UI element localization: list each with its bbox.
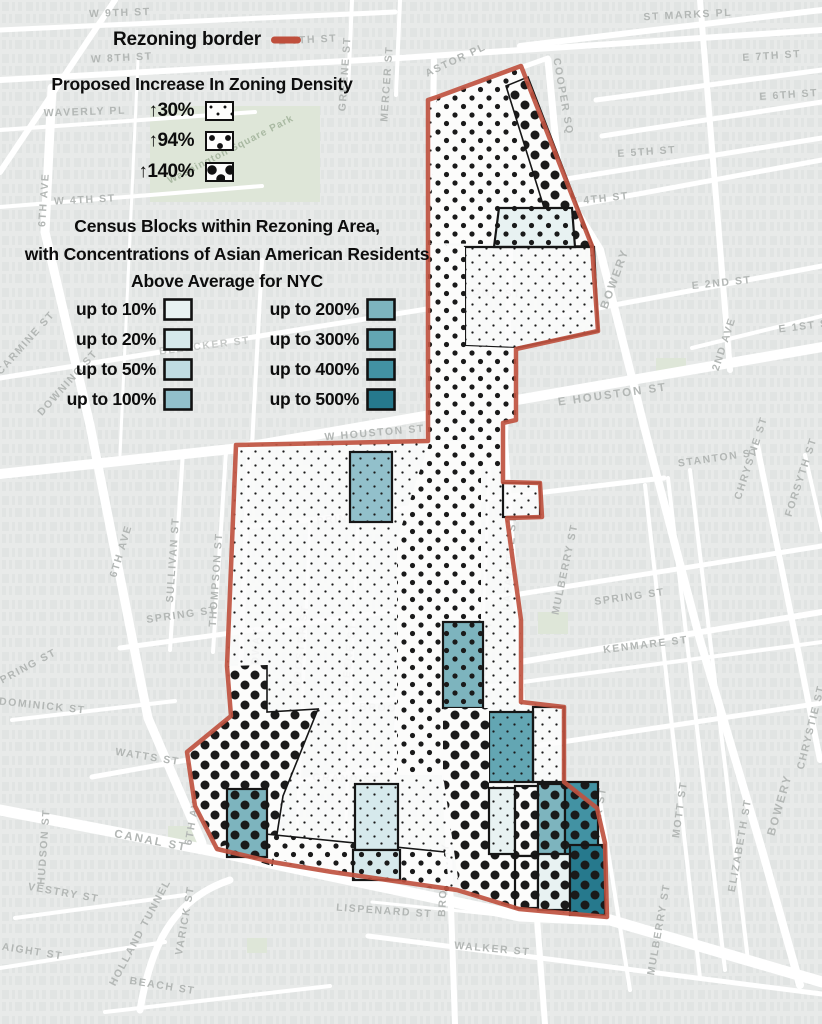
census-block [515, 856, 538, 908]
census-block [489, 712, 533, 782]
census-block [538, 784, 565, 856]
census-block [227, 789, 267, 857]
census-block [489, 788, 515, 854]
census-block [443, 622, 483, 708]
census-block [355, 784, 398, 850]
base-map: W 9TH ST ST MARKS PL W 8TH ST E 8TH ST E… [0, 0, 822, 1024]
census-block [350, 452, 392, 522]
census-block [538, 854, 570, 910]
census-block [570, 845, 605, 915]
rezoning-map-page: W 9TH ST ST MARKS PL W 8TH ST E 8TH ST E… [0, 0, 822, 1024]
census-block [494, 208, 575, 247]
street-label: W 9TH ST [89, 6, 151, 20]
census-block [515, 786, 538, 856]
